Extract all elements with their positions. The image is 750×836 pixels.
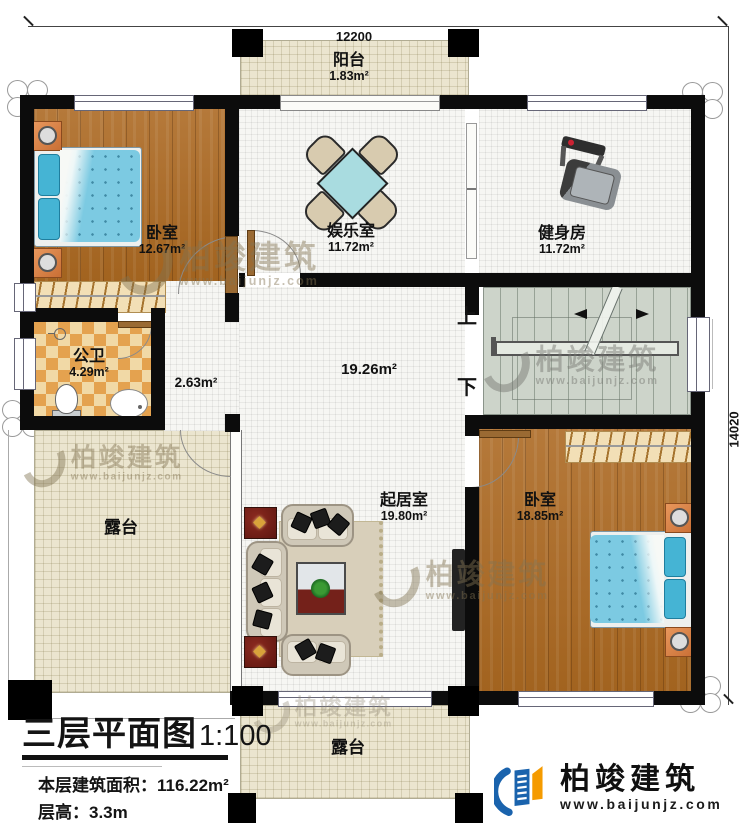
stair-rail-cap — [491, 337, 496, 356]
room-name: 阳台 — [329, 52, 369, 70]
door-leaf — [247, 230, 255, 276]
title-underline — [22, 755, 228, 760]
room-area: 18.85m² — [517, 510, 564, 524]
brand-text: 柏竣建筑 www.baijunjz.com — [560, 764, 722, 812]
window — [14, 283, 36, 312]
room-label-bedroom1: 卧室 12.67m² — [139, 225, 186, 256]
room-label-entertainment: 娱乐室 11.72m² — [327, 223, 375, 254]
floor-drain-line — [48, 333, 55, 334]
brand-url: www.baijunjz.com — [560, 796, 722, 812]
bed-sheet — [614, 535, 664, 623]
plan-title: 三层平面图 — [22, 715, 197, 753]
room-area: 2.63m² — [175, 376, 218, 391]
toilet — [55, 384, 78, 414]
room-label-living: 起居室 19.80m² — [380, 492, 428, 523]
wall — [20, 95, 34, 283]
brand-logo: 柏竣建筑 www.baijunjz.com — [494, 758, 722, 818]
pillow — [38, 154, 60, 196]
room-area: 11.72m² — [538, 243, 586, 257]
title-underline-thin — [22, 766, 162, 767]
column — [448, 29, 479, 57]
door-leaf — [479, 430, 531, 438]
wall — [225, 293, 239, 322]
title-block: 三层平面图1:100 — [22, 706, 272, 755]
sink — [110, 389, 148, 418]
tv — [452, 549, 465, 631]
dimension-tick — [23, 16, 34, 27]
bed-sheet — [60, 150, 110, 242]
door-leaf — [118, 321, 153, 328]
wall — [652, 691, 705, 705]
partition-wall — [230, 430, 242, 691]
nightstand — [665, 627, 694, 657]
wall — [438, 95, 527, 109]
column — [448, 686, 479, 716]
floor-drain — [54, 328, 66, 340]
wall — [225, 414, 240, 432]
room-name: 健身房 — [538, 225, 586, 243]
window — [14, 338, 36, 390]
door-leaf — [225, 236, 238, 295]
room-label-balcony: 阳台 1.83m² — [329, 52, 369, 83]
room-area: 19.26m² — [341, 362, 397, 379]
pillow — [38, 198, 60, 240]
room-name: 公卫 — [69, 348, 109, 366]
dimension-line-top — [28, 26, 728, 27]
room-area: 12.67m² — [139, 243, 186, 257]
room-name: 起居室 — [380, 492, 428, 510]
wall — [465, 429, 479, 436]
stair-direction-arrow — [574, 309, 587, 319]
brand-logo-icon — [494, 758, 550, 818]
coffee-table — [296, 562, 346, 615]
wardrobe — [565, 431, 693, 463]
room-label-gym: 健身房 11.72m² — [538, 225, 586, 256]
window — [527, 95, 647, 111]
window — [687, 317, 710, 392]
balcony-sliding-door — [280, 95, 440, 111]
room-area: 4.29m² — [69, 366, 109, 380]
area-label-hall: 19.26m² — [341, 362, 397, 379]
area-label-corridor: 2.63m² — [175, 376, 218, 391]
wall — [300, 273, 705, 287]
room-area: 1.83m² — [329, 70, 369, 84]
brand-name: 柏竣建筑 — [560, 764, 722, 796]
stairwell-outline — [512, 317, 632, 400]
room-label-terrace-bottom: 露台 — [331, 739, 365, 758]
floor-area-line: 本层建筑面积：116.22m² — [38, 771, 229, 796]
stair-direction-arrow — [636, 309, 649, 319]
stairs-down-label: 下 — [457, 371, 477, 400]
window — [518, 691, 654, 707]
room-name: 露台 — [104, 519, 138, 538]
side-table — [244, 636, 277, 668]
faucet — [138, 405, 142, 409]
floor-area-value: 116.22m² — [157, 776, 229, 795]
room-name: 卧室 — [517, 492, 564, 510]
floor-plan: 12200 14020 — [0, 0, 750, 836]
column — [455, 793, 483, 823]
corridor-floor — [164, 310, 239, 431]
plan-scale: 1:100 — [199, 720, 272, 752]
floor-height-label: 层高： — [38, 803, 89, 822]
side-table — [244, 507, 277, 539]
wall — [691, 390, 705, 705]
dimension-line-right — [728, 26, 729, 705]
wall — [151, 308, 165, 430]
wall — [192, 95, 280, 109]
dimension-tick — [717, 16, 728, 27]
nightstand — [33, 121, 62, 151]
window-sill-line — [712, 319, 713, 389]
room-name: 露台 — [331, 739, 365, 758]
wall — [465, 415, 705, 429]
dimension-top-value: 12200 — [324, 29, 384, 44]
pillow — [664, 537, 686, 577]
terrace-outline — [8, 430, 235, 719]
column — [228, 793, 256, 823]
room-area: 19.80m² — [380, 510, 428, 524]
wall — [225, 109, 239, 236]
nightstand — [33, 248, 62, 278]
room-name: 娱乐室 — [327, 223, 375, 241]
nightstand — [665, 503, 694, 533]
sliding-door — [466, 123, 477, 259]
pillow — [664, 579, 686, 619]
wall — [239, 273, 245, 287]
dimension-right-value: 14020 — [727, 400, 742, 460]
room-label-bedroom2: 卧室 18.85m² — [517, 492, 564, 523]
wall — [465, 487, 479, 705]
window — [74, 95, 194, 111]
floor-area-label: 本层建筑面积： — [38, 776, 157, 795]
wall — [20, 416, 165, 430]
window — [278, 691, 432, 707]
room-label-terrace-left: 露台 — [104, 519, 138, 538]
room-label-bathroom: 公卫 4.29m² — [69, 348, 109, 379]
stairs-up-label: 上 — [457, 300, 477, 329]
floor-height-line: 层高：3.3m — [38, 798, 128, 823]
room-area: 11.72m² — [327, 241, 375, 255]
room-name: 卧室 — [139, 225, 186, 243]
column — [232, 29, 263, 57]
floor-height-value: 3.3m — [89, 803, 128, 822]
